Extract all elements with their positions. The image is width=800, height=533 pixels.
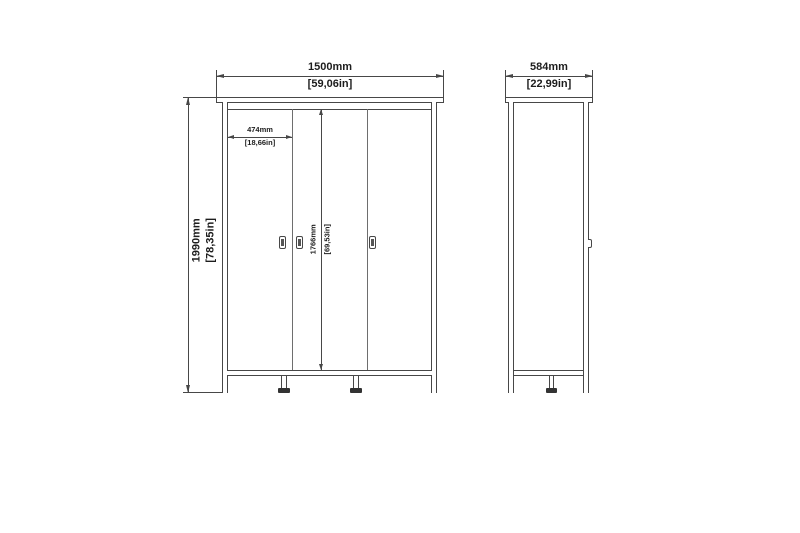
dim-depth-mm-label: 584mm (505, 61, 593, 74)
dim-depth-line (505, 76, 593, 77)
dimension-diagram: 1500mm [59,06in] 1990mm [78,35in] 474mm … (0, 0, 800, 533)
dim-depth-in-label: [22,99in] (505, 78, 593, 91)
dim-depth: 584mm [22,99in] (0, 0, 800, 533)
